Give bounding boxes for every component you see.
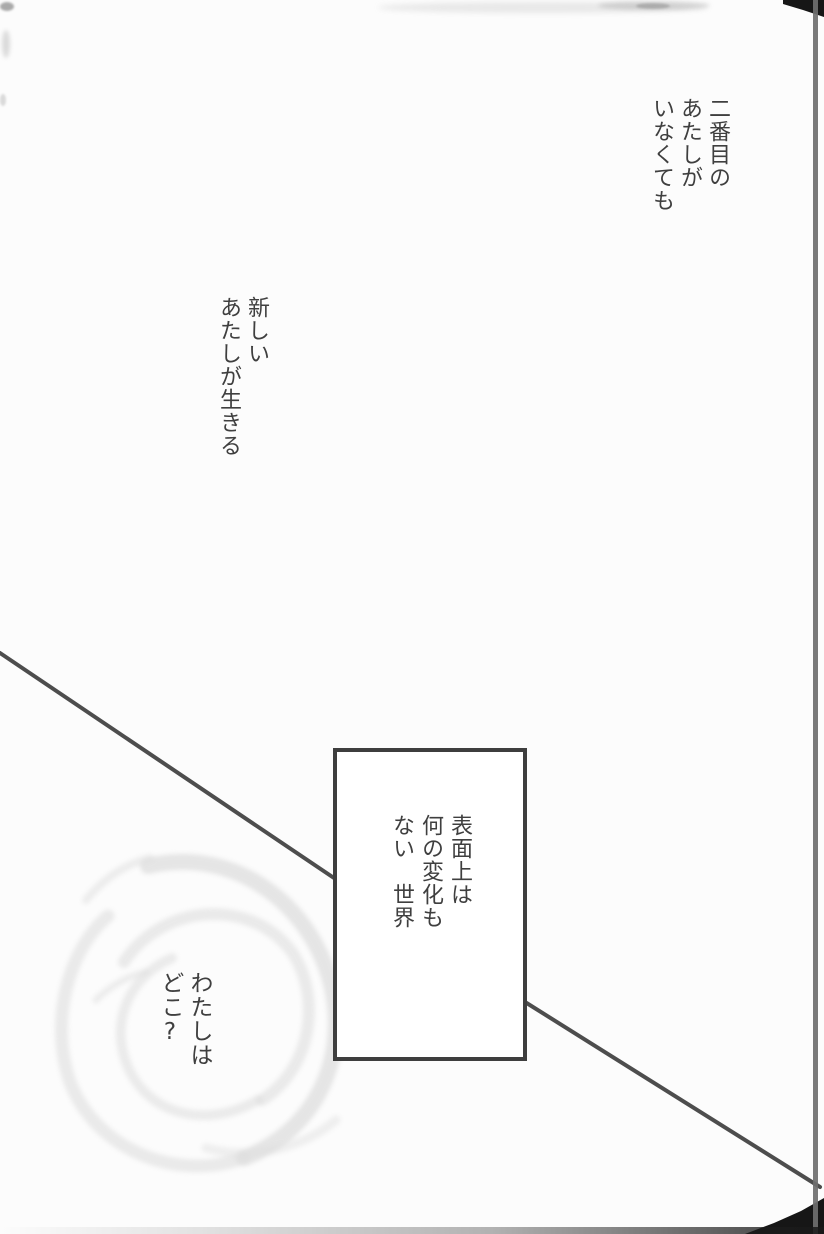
diagonal-line-right-segment [525, 1002, 820, 1187]
caption-line: いなくても [647, 97, 675, 212]
page-edge-right-line [813, 0, 818, 1234]
caption-surface-world: 表面上は 何の変化も ない 世界 [387, 814, 474, 929]
swirl-arc-outer-bottom [61, 916, 244, 1166]
caption-line: 新しい [242, 296, 270, 457]
scan-artifact-left-speck-2 [2, 30, 10, 58]
caption-where-am-i: わたしは どこ? [155, 971, 213, 1067]
swirl-arc-middle [124, 914, 309, 1100]
swirl-streak-top [86, 858, 150, 900]
caption-line: どこ? [155, 971, 184, 1067]
caption-line: わたしは [184, 971, 213, 1067]
caption-line: あたしが [675, 97, 703, 212]
scan-artifact-left-speck-3 [0, 94, 6, 106]
caption-line: あたしが生きる [214, 296, 242, 457]
caption-line: ない 世界 [387, 814, 416, 929]
caption-new-self: 新しい あたしが生きる [214, 296, 270, 457]
diagonal-line-left-segment [0, 653, 334, 878]
caption-line: 二番目の [703, 97, 731, 212]
caption-line: 何の変化も [416, 814, 445, 929]
caption-box: 表面上は 何の変化も ない 世界 [333, 748, 527, 1061]
scan-artifact-left-speck [0, 2, 14, 11]
caption-second-me: 二番目の あたしが いなくても [647, 97, 731, 212]
page-edge-bottom-band [0, 1227, 824, 1234]
scan-artifact-top-spot [636, 3, 670, 9]
caption-line: 表面上は [445, 814, 474, 929]
manga-page: 二番目の あたしが いなくても 新しい あたしが生きる 表面上は 何の変化も な… [0, 0, 824, 1234]
